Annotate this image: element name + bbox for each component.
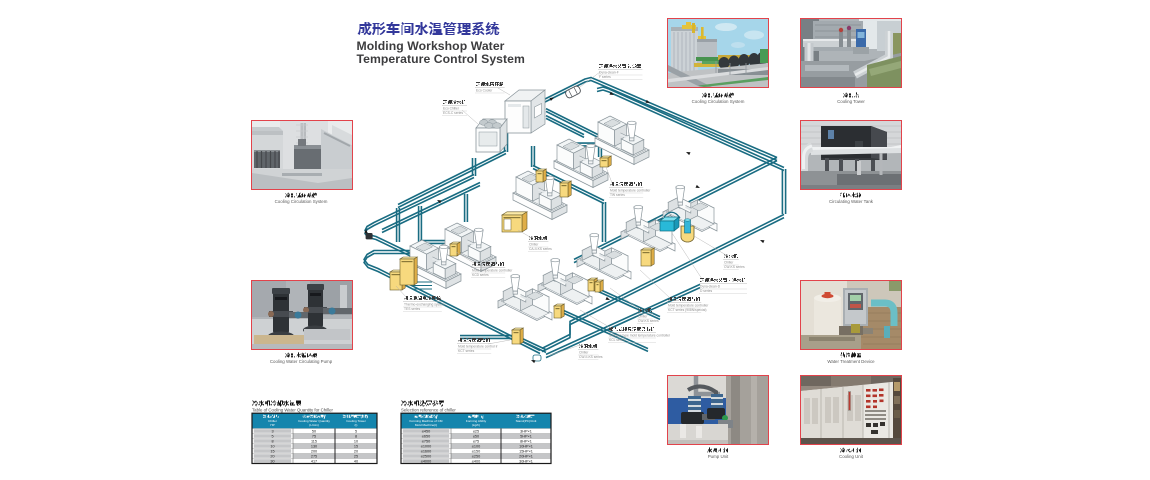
svg-text:Mold Machine(t): Mold Machine(t) [415,423,437,427]
svg-text:115: 115 [310,439,316,443]
svg-text:417: 417 [310,459,316,463]
svg-text:8: 8 [271,439,273,443]
svg-text:40: 40 [353,459,357,463]
svg-text:5HP×1: 5HP×1 [520,434,532,438]
svg-text:≤50: ≤50 [473,434,479,438]
svg-text:Table of Cooling Water Quantit: Table of Cooling Water Quantity for Chil… [252,407,334,412]
svg-text:Mold temperature controller: Mold temperature controller [610,189,651,193]
svg-text:≤750: ≤750 [422,439,430,443]
svg-text:20: 20 [353,449,357,453]
svg-text:Chiller: Chiller [638,315,648,319]
svg-text:≤400: ≤400 [472,459,480,463]
svg-text:10: 10 [270,444,274,448]
svg-text:KCT series: KCT series [458,349,475,353]
svg-text:10HP×1: 10HP×1 [519,444,533,448]
svg-text:5: 5 [354,429,356,433]
svg-text:CW-II-KS series: CW-II-KS series [579,355,603,359]
svg-text:ECS-C series: ECS-C series [443,111,463,115]
svg-text:(kg/h): (kg/h) [472,423,480,427]
svg-text:KCT series (908N/special): KCT series (908N/special) [668,308,706,312]
svg-text:15: 15 [353,444,357,448]
svg-text:CW-KS series: CW-KS series [724,265,745,269]
svg-text:8: 8 [354,434,356,438]
svg-text:≤150: ≤150 [472,449,480,453]
svg-text:KCL series: KCL series [609,338,625,342]
svg-text:≤75: ≤75 [473,439,479,443]
svg-text:F series: F series [599,75,611,79]
svg-text:Eco Chiller: Eco Chiller [443,107,460,111]
svg-text:30: 30 [270,459,274,463]
svg-text:15: 15 [270,449,274,453]
svg-text:200: 200 [310,449,316,453]
svg-text:3: 3 [271,429,273,433]
svg-text:Suitcase type mold temperature: Suitcase type mold temperature controlle… [609,334,671,338]
svg-text:TW series: TW series [610,193,625,197]
svg-text:(L/min): (L/min) [309,423,319,427]
svg-text:TES series: TES series [404,307,420,311]
svg-text:≤1600: ≤1600 [421,449,432,453]
svg-text:≤25: ≤25 [473,429,479,433]
svg-text:30HP×1: 30HP×1 [519,459,533,463]
svg-text:≤4000: ≤4000 [421,459,432,463]
svg-text:275: 275 [310,454,316,458]
svg-text:Mold temperature control Ir: Mold temperature control Ir [458,345,498,349]
svg-text:25: 25 [353,454,357,458]
svg-text:Dyna-clean-F: Dyna-clean-F [599,71,619,75]
svg-text:Mold temperature controller: Mold temperature controller [668,304,709,308]
svg-text:≤100: ≤100 [472,444,480,448]
svg-text:Mold temperature controller: Mold temperature controller [472,269,513,273]
svg-text:Chiller: Chiller [724,261,734,265]
svg-text:8HP×1: 8HP×1 [520,439,532,443]
svg-text:75: 75 [311,434,315,438]
svg-text:≤1000: ≤1000 [421,444,432,448]
svg-text:HP: HP [270,423,274,427]
svg-text:Chiller: Chiller [579,351,589,355]
svg-text:Eco Cooler: Eco Cooler [476,89,493,93]
svg-text:5: 5 [271,434,273,438]
svg-text:KCD series: KCD series [472,273,489,277]
svg-text:Chiller: Chiller [529,243,539,247]
svg-text:CW-KS series: CW-KS series [638,319,659,323]
svg-text:10: 10 [353,439,357,443]
svg-text:50: 50 [311,429,315,433]
svg-text:Dyna-clean-D: Dyna-clean-D [700,285,721,289]
svg-text:≤650: ≤650 [422,434,430,438]
svg-text:(t): (t) [354,423,357,427]
svg-text:Thermo-exchanging system: Thermo-exchanging system [404,303,445,307]
svg-text:≤2500: ≤2500 [421,454,432,458]
svg-text:20HP×1: 20HP×1 [519,454,533,458]
svg-text:130: 130 [310,444,316,448]
svg-text:3HP×1: 3HP×1 [520,429,532,433]
svg-text:15HP×1: 15HP×1 [519,449,533,453]
svg-text:D series: D series [700,289,712,293]
svg-text:CA-II-KS series: CA-II-KS series [529,247,552,251]
svg-text:20: 20 [270,454,274,458]
svg-text:≤250: ≤250 [472,454,480,458]
svg-text:≤450: ≤450 [422,429,430,433]
